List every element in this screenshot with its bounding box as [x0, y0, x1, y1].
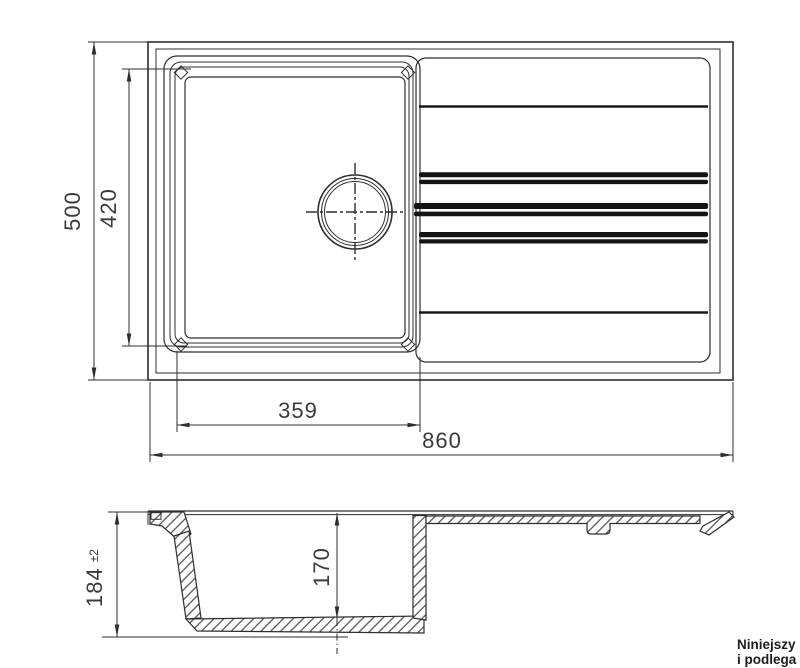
groove-bar-3a	[419, 232, 708, 237]
groove-bar-1a	[419, 172, 708, 177]
bowl-outlines	[164, 56, 420, 352]
dimension-860: 860	[150, 382, 733, 462]
arrow-down	[92, 368, 97, 381]
dimension-420: 420	[96, 69, 191, 346]
top-surface-outline	[416, 58, 710, 362]
arrow-right	[408, 423, 421, 428]
arrow-left	[150, 453, 163, 458]
dimension-170: 170	[309, 513, 339, 654]
groove-line-bottom	[419, 311, 708, 313]
groove-bar-2b	[414, 212, 708, 217]
footer-note: Niniejszy i podlega	[737, 637, 797, 667]
groove-bar-1b	[419, 180, 708, 184]
footer-note-line1: Niniejszy	[737, 637, 796, 652]
arrow-up	[127, 69, 132, 82]
bowl-corner-chamfer-bl	[174, 338, 187, 351]
footer-note-line2: i podlega	[737, 652, 797, 667]
section-view: 184±2 170	[82, 511, 734, 654]
groove-bar-2a	[414, 203, 708, 209]
arrow-up	[92, 42, 97, 55]
arrow-right	[721, 453, 734, 458]
sink-outer-edge	[148, 42, 733, 380]
arrow-left	[177, 423, 190, 428]
arrow-up	[115, 512, 120, 525]
arrow-down	[115, 625, 120, 638]
bowl-rim-outline-1	[164, 56, 420, 352]
dim-tolerance: ±2	[87, 549, 101, 563]
bowl-rim-outline-3	[175, 67, 409, 343]
sink-inner-edge	[156, 49, 720, 373]
groove-line-top	[419, 105, 708, 107]
groove-bar-3b	[419, 239, 708, 243]
bowl-wall-left-section	[174, 531, 201, 619]
dim-label-bowl-depth: 420	[96, 188, 121, 228]
bowl-wall-right-section	[413, 516, 426, 621]
bowl-bottom-section	[186, 616, 424, 633]
sink-technical-drawing: 500 420 359 860	[0, 0, 800, 668]
dim-label-bowl-inner-depth: 170	[309, 547, 334, 587]
arrow-down	[127, 334, 132, 347]
dim-label-overall-depth: 500	[60, 191, 85, 231]
dim-label-bowl-width: 359	[278, 398, 318, 423]
top-view: 500 420 359 860	[60, 42, 733, 462]
dimension-359: 359	[177, 351, 420, 432]
bowl-rim-outline-2	[170, 62, 413, 347]
bowl-inner-edge	[185, 77, 405, 338]
dim-label-overall-width: 860	[422, 428, 462, 453]
drainboard-section	[426, 516, 700, 534]
rim-right-hook-section	[700, 512, 734, 535]
drain	[306, 163, 404, 261]
dim-label-total-height: 184±2	[82, 549, 107, 607]
drainboard-grooves	[414, 105, 708, 313]
